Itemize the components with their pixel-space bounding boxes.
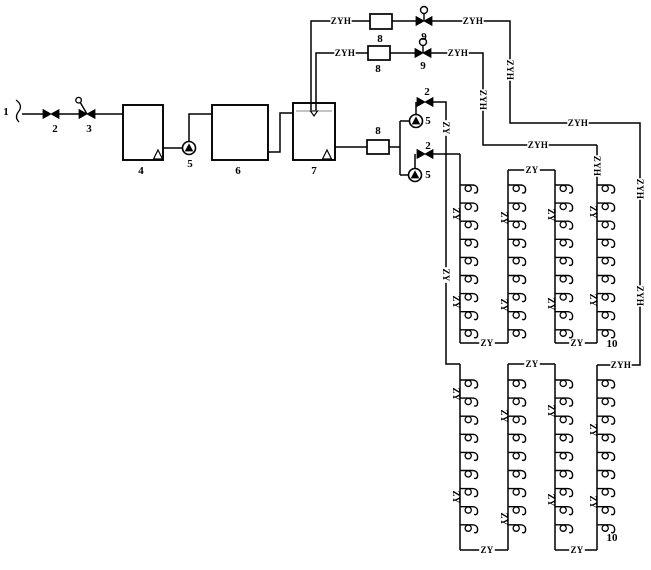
faucet-icon (555, 398, 573, 406)
faucet-body (602, 380, 608, 386)
faucet-body (513, 471, 519, 477)
pipe-label: ZY (480, 338, 493, 348)
faucet-icon (555, 312, 573, 320)
faucet-icon (460, 380, 478, 388)
faucet-body (560, 203, 566, 209)
pipe-label: ZYH (611, 360, 631, 370)
faucet-body (465, 489, 471, 495)
faucet-icon (508, 489, 526, 497)
pipe-label: ZYH (478, 90, 488, 110)
faucet-icon (597, 489, 615, 497)
valve-bowtie (43, 110, 59, 119)
faucet-body (513, 507, 519, 513)
faucet-body (602, 294, 608, 300)
faucet-body (602, 435, 608, 441)
faucet-icon (460, 525, 478, 533)
faucet-body (513, 276, 519, 282)
pipe-label: ZY (451, 207, 461, 220)
faucet-icon (597, 330, 615, 338)
return-valve-9-1-icon (416, 7, 432, 26)
faucet-body (602, 417, 608, 423)
pipe-label: ZYH (528, 140, 548, 150)
pipe-label: ZY (525, 359, 538, 369)
pipe-label: ZYH (635, 286, 645, 306)
equipment-number: 2 (424, 86, 430, 98)
pipe-label-group: ZY (588, 423, 598, 436)
equipment-number: 8 (375, 125, 381, 137)
faucet-icon (508, 434, 526, 442)
faucet-body (465, 276, 471, 282)
faucet-body (465, 222, 471, 228)
faucet-body (513, 398, 519, 404)
faucet-body (560, 330, 566, 336)
pipe-label: ZY (451, 387, 461, 400)
faucet-icon (508, 203, 526, 211)
faucet-body (513, 294, 519, 300)
faucet-body (602, 525, 608, 531)
faucet-icon (508, 185, 526, 193)
faucet-body (513, 330, 519, 336)
pipe-label-group: ZYH (505, 59, 515, 80)
faucet-icon (508, 312, 526, 320)
faucet-icon (460, 507, 478, 515)
faucet-icon (508, 398, 526, 406)
pipe (433, 102, 460, 364)
faucet-body (560, 276, 566, 282)
faucet-icon (597, 294, 615, 302)
equipment-number: 5 (187, 158, 193, 170)
pipe (311, 21, 370, 111)
faucet-body (465, 185, 471, 191)
faucet-icon (460, 221, 478, 229)
faucet-body (602, 489, 608, 495)
pipe-label: ZY (499, 512, 509, 525)
pipe-label: ZY (451, 295, 461, 308)
faucet-body (602, 471, 608, 477)
equipment-number: 2 (52, 123, 58, 135)
faucet-icon (555, 434, 573, 442)
faucet-icon (597, 398, 615, 406)
faucet-body (560, 453, 566, 459)
pipe-label: ZYH (448, 48, 468, 58)
faucet-body (602, 276, 608, 282)
faucet-body (465, 240, 471, 246)
flow-meter-8-2 (368, 46, 390, 60)
faucet-icon (555, 203, 573, 211)
faucet-icon (460, 398, 478, 406)
faucet-body (560, 417, 566, 423)
faucet-icon (508, 239, 526, 247)
faucet-icon (555, 380, 573, 388)
faucet-icon (508, 416, 526, 424)
flow-meter-8-1 (370, 14, 392, 29)
pipe-label: ZYH (568, 118, 588, 128)
faucet-icon (597, 185, 615, 193)
faucet-body (465, 471, 471, 477)
pipe (189, 114, 212, 142)
faucet-body (602, 222, 608, 228)
faucet-body (513, 240, 519, 246)
faucet-body (560, 471, 566, 477)
pipe-label: ZY (499, 409, 509, 422)
faucet-body (560, 312, 566, 318)
faucet-body (465, 507, 471, 513)
faucet-icon (555, 330, 573, 338)
faucet-icon (508, 452, 526, 460)
faucet-body (560, 435, 566, 441)
faucet-icon (460, 203, 478, 211)
faucet-icon (460, 471, 478, 479)
pipe-label: ZY (441, 121, 451, 134)
faucet-icon (460, 330, 478, 338)
valve-bowtie (417, 98, 433, 107)
faucet-icon (508, 221, 526, 229)
pipe-label: ZYH (463, 16, 483, 26)
supply-pump-5b-icon (409, 169, 422, 182)
faucet-icon (508, 276, 526, 284)
faucet-body (513, 203, 519, 209)
faucet-body (513, 525, 519, 531)
pipe-label: ZY (499, 298, 509, 311)
pipe-label-group: ZY (588, 293, 598, 306)
pipe-label-group: ZY (499, 211, 509, 224)
faucet-body (465, 312, 471, 318)
system-diagram: ZYHZYHZYHZYHZYHZYHZYHZYZYZYZYZYZYZYHZYHZ… (0, 0, 651, 570)
faucet-icon (555, 276, 573, 284)
pipe-label-group: ZY (441, 267, 451, 283)
pipe-label-group: ZYH (635, 178, 645, 199)
faucet-body (602, 185, 608, 191)
pipe-label: ZY (588, 423, 598, 436)
faucet-icon (460, 257, 478, 265)
faucet-icon (508, 507, 526, 515)
equipment-number: 4 (138, 165, 144, 177)
faucet-icon (508, 330, 526, 338)
equipment-number: 3 (86, 123, 92, 135)
tank-6 (212, 105, 268, 160)
faucet-icon (460, 452, 478, 460)
faucet-icon (555, 525, 573, 533)
pipe-label-group: ZY (441, 120, 451, 136)
equipment-number: 7 (311, 165, 317, 177)
pipe-label: ZY (546, 297, 556, 310)
faucet-icon (555, 239, 573, 247)
pipe-label-group: ZY (451, 490, 461, 503)
faucet-icon (508, 294, 526, 302)
pipe-label: ZY (570, 545, 583, 555)
pipe-label: ZYH (635, 179, 645, 199)
pipe-label-group: ZYH (635, 285, 645, 306)
faucet-body (465, 258, 471, 264)
faucet-body (513, 312, 519, 318)
faucet-icon (460, 239, 478, 247)
equipment-number: 9 (421, 31, 427, 43)
faucet-body (560, 380, 566, 386)
faucet-icon (460, 312, 478, 320)
faucet-body (465, 203, 471, 209)
pipe-label: ZY (588, 205, 598, 218)
pipe-label-group: ZY (546, 208, 556, 221)
pipe-label-group: ZYH (478, 89, 488, 110)
faucet-icon (555, 489, 573, 497)
faucet-body (465, 525, 471, 531)
faucet-icon (460, 416, 478, 424)
equipment-number: 9 (420, 60, 426, 72)
faucet-icon (597, 221, 615, 229)
pipe-label: ZY (546, 404, 556, 417)
faucet-icon (597, 312, 615, 320)
faucet-body (602, 203, 608, 209)
pipe-label: ZY (546, 208, 556, 221)
pipe-label-group: ZY (451, 387, 461, 400)
faucet-icon (597, 257, 615, 265)
pipe (432, 21, 640, 365)
faucet-icon (460, 489, 478, 497)
faucet-body (465, 435, 471, 441)
faucet-body (465, 417, 471, 423)
faucet-icon (508, 525, 526, 533)
schematic-page: ZYHZYHZYHZYHZYHZYHZYHZYZYZYZYZYZYZYHZYHZ… (0, 0, 651, 570)
faucet-icon (597, 416, 615, 424)
faucet-body (560, 294, 566, 300)
faucet-icon (508, 380, 526, 388)
faucet-body (602, 398, 608, 404)
faucet-body (602, 258, 608, 264)
faucet-body (513, 453, 519, 459)
faucet-body (560, 258, 566, 264)
faucet-icon (597, 434, 615, 442)
valve-lever-knob (76, 97, 82, 103)
pipe-label: ZY (480, 545, 493, 555)
pipe-label-group: ZY (546, 404, 556, 417)
pipe-label: ZYH (592, 156, 602, 176)
pipe-label-group: ZY (546, 297, 556, 310)
pipe-label-group: ZY (546, 493, 556, 506)
faucet-body (602, 312, 608, 318)
faucet-icon (555, 507, 573, 515)
faucet-body (602, 507, 608, 513)
equipment-number: 1 (3, 106, 9, 118)
pipe-label-group: ZY (588, 495, 598, 508)
pipe-label: ZY (441, 268, 451, 281)
faucet-icon (597, 471, 615, 479)
faucet-body (560, 525, 566, 531)
supply-break-icon (16, 100, 20, 122)
pipe-label: ZY (588, 495, 598, 508)
pipe-label: ZYH (505, 60, 515, 80)
faucet-body (465, 398, 471, 404)
pipe-label-group: ZY (499, 409, 509, 422)
faucet-body (465, 380, 471, 386)
pipe (268, 113, 293, 152)
faucet-body (513, 380, 519, 386)
faucet-icon (597, 452, 615, 460)
faucet-body (560, 222, 566, 228)
pipe-label: ZY (451, 490, 461, 503)
equipment-number: 10 (607, 338, 619, 350)
pipe-label: ZYH (335, 48, 355, 58)
inlet-lever-valve-3-icon (76, 97, 95, 118)
faucet-icon (597, 203, 615, 211)
equipment-number: 10 (607, 532, 619, 544)
faucet-body (602, 330, 608, 336)
faucet-body (513, 417, 519, 423)
faucet-icon (460, 294, 478, 302)
pipe-label: ZYH (331, 16, 351, 26)
flow-meter-8-3 (367, 140, 389, 154)
equipment-number: 5 (425, 115, 431, 127)
pipe-label: ZY (570, 338, 583, 348)
faucet-icon (508, 257, 526, 265)
faucet-icon (597, 380, 615, 388)
pipe-label: ZY (525, 165, 538, 175)
faucet-icon (555, 416, 573, 424)
faucet-icon (555, 452, 573, 460)
pipe-label-group: ZY (499, 512, 509, 525)
faucet-body (560, 507, 566, 513)
faucet-icon (555, 257, 573, 265)
faucet-body (602, 240, 608, 246)
faucet-body (465, 294, 471, 300)
pipe-label-group: ZY (451, 207, 461, 220)
pump-a-discharge-valve-2-icon (417, 98, 433, 107)
faucet-icon (555, 185, 573, 193)
faucet-icon (460, 276, 478, 284)
faucet-body (465, 330, 471, 336)
faucet-icon (597, 239, 615, 247)
faucet-icon (597, 276, 615, 284)
faucet-icon (460, 185, 478, 193)
pipe-label-group: ZY (588, 205, 598, 218)
faucet-body (560, 489, 566, 495)
faucet-body (602, 453, 608, 459)
faucet-icon (555, 471, 573, 479)
faucet-icon (555, 294, 573, 302)
faucet-body (560, 240, 566, 246)
faucet-icon (555, 221, 573, 229)
faucet-body (513, 258, 519, 264)
inlet-gate-valve-2-icon (43, 110, 59, 119)
faucet-body (513, 489, 519, 495)
faucet-body (465, 453, 471, 459)
supply-pump-5a-icon (410, 115, 423, 128)
pipe-label: ZY (546, 493, 556, 506)
faucet-body (560, 185, 566, 191)
faucet-body (513, 435, 519, 441)
equipment-number: 8 (377, 33, 383, 45)
faucet-icon (460, 434, 478, 442)
pipe-label-group: ZY (499, 298, 509, 311)
pipe-label: ZY (588, 293, 598, 306)
equipment-number: 5 (425, 169, 431, 181)
faucet-icon (508, 471, 526, 479)
equipment-number: 8 (375, 63, 381, 75)
faucet-body (513, 222, 519, 228)
valve-actuator (421, 7, 428, 14)
equipment-number: 2 (425, 140, 431, 152)
transfer-pump-5-icon (183, 142, 196, 155)
faucet-body (560, 398, 566, 404)
pipe-label-group: ZY (451, 295, 461, 308)
pipe-label: ZY (499, 211, 509, 224)
faucet-body (513, 185, 519, 191)
faucet-icon (597, 507, 615, 515)
equipment-number: 6 (235, 165, 241, 177)
pipe-label-group: ZYH (592, 155, 602, 176)
